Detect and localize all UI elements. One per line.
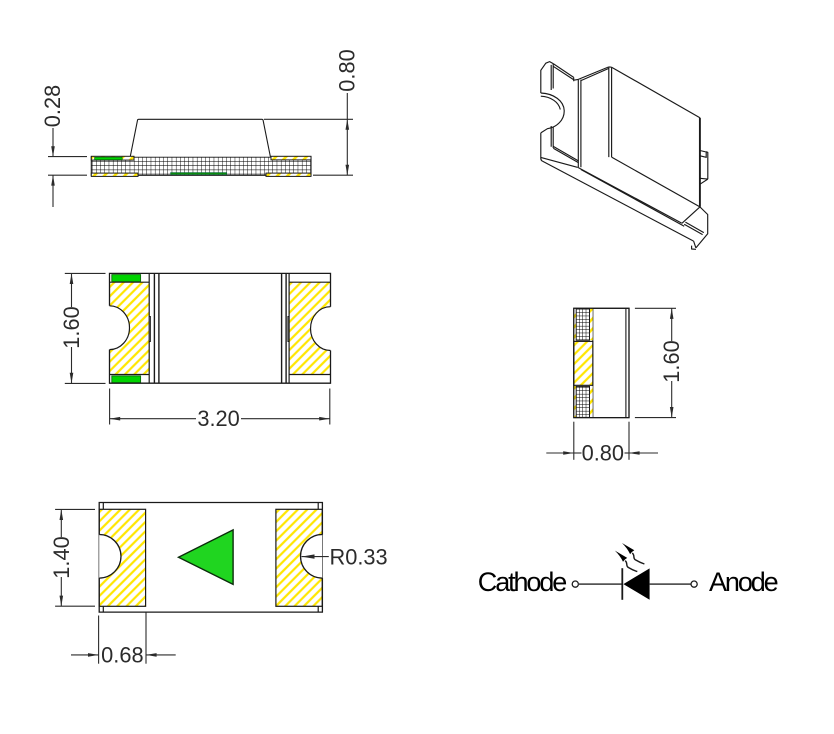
svg-text:0.68: 0.68 <box>101 642 143 667</box>
svg-text:Cathode: Cathode <box>478 567 566 597</box>
svg-text:R0.33: R0.33 <box>330 545 388 570</box>
svg-text:3.20: 3.20 <box>197 406 239 431</box>
svg-text:0.28: 0.28 <box>40 85 65 127</box>
svg-text:1.60: 1.60 <box>659 340 684 382</box>
svg-text:0.80: 0.80 <box>582 440 624 465</box>
svg-text:1.60: 1.60 <box>59 306 84 348</box>
svg-text:1.40: 1.40 <box>49 536 74 578</box>
svg-text:0.80: 0.80 <box>335 49 360 91</box>
svg-text:Anode: Anode <box>709 567 778 597</box>
